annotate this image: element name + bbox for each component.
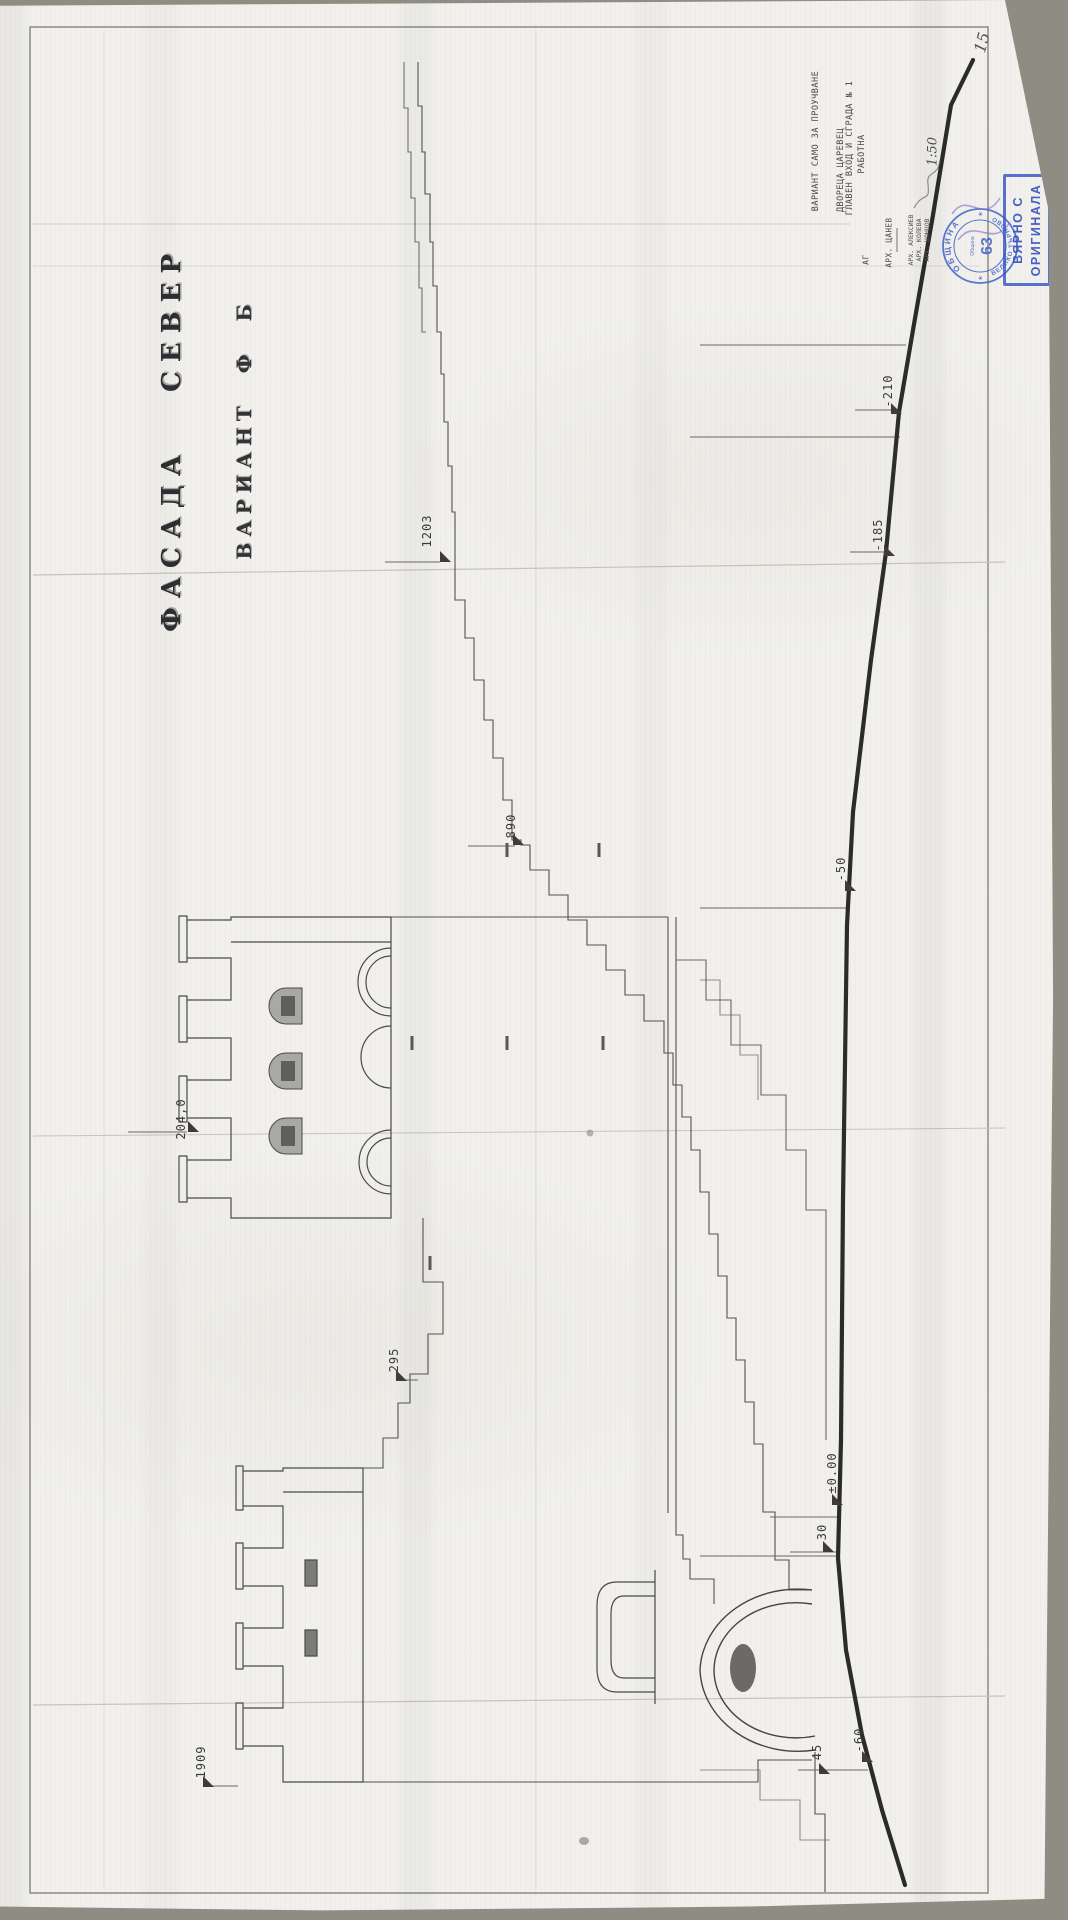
title-block-drawing-name: ГЛАВЕН ВХОД И СГРАДА № 1	[845, 78, 855, 218]
title-block-status: РАБОТНА	[857, 84, 867, 224]
certified-copy-stamp: ВЯРНО С ОРИГИНАЛА	[1003, 174, 1051, 286]
stamp-ring-top-text: ОБЩИНА	[943, 218, 962, 274]
title-block-architect-2: АРХ. КОЛЕВА	[915, 195, 923, 285]
certified-copy-stamp-line1: ВЯРНО С	[1009, 184, 1027, 277]
upper-tower-windows	[269, 988, 302, 1154]
elevation-label: 30	[815, 1497, 829, 1567]
elevation-label: -185	[871, 500, 885, 570]
drawing-title: ФАСАДА СЕВЕР	[157, 252, 187, 632]
elevation-label: 204,0	[174, 1084, 188, 1154]
lower-tower	[236, 1466, 363, 1782]
elevation-marker-icon	[884, 545, 895, 556]
elevation-marker-icon	[832, 1494, 843, 1505]
title-block-section-label: АГ	[862, 245, 871, 275]
gate-arch	[700, 1589, 815, 1751]
elevation-label: 45	[810, 1717, 824, 1787]
elevation-label: -50	[834, 834, 848, 904]
elevation-marker-icon	[203, 1776, 214, 1787]
title-block-variant-note: ВАРИАНТ САМО ЗА ПРОУЧВАНЕ	[811, 61, 821, 221]
putlog-holes	[412, 843, 603, 1270]
elevation-label: 890	[504, 791, 518, 861]
terrain-line	[838, 60, 973, 1885]
certified-copy-stamp-line2: ОРИГИНАЛА	[1027, 184, 1045, 277]
elevation-marker-icon	[396, 1370, 407, 1381]
elevation-label: 295	[387, 1325, 401, 1395]
paper-sheet: ОБЩИНА ВЕЛИКО ТЪРНОВО ✶ ✶ Община 63 ФАСА…	[0, 0, 1068, 1920]
title-block-architect-lead: АРХ. ЦАНЕВ	[885, 198, 894, 288]
stamp-star-right-icon: ✶	[977, 211, 985, 217]
elevation-marker-icon	[819, 1763, 830, 1774]
elevation-label: -210	[881, 356, 895, 426]
elevation-marker-icon	[845, 880, 856, 891]
scanned-drawing-sheet: ОБЩИНА ВЕЛИКО ТЪРНОВО ✶ ✶ Община 63 ФАСА…	[0, 0, 1068, 1920]
elevation-marker-icon	[862, 1751, 873, 1762]
scan-blemishes	[579, 1130, 594, 1846]
elevation-marker-icon	[891, 403, 902, 414]
drawing-scale: 1:50	[926, 122, 941, 182]
title-block-architect-3: АРХ. ЦОНЦОВ	[923, 195, 931, 285]
stamp-center-number: 63	[979, 237, 996, 255]
elevation-label: 1203	[420, 496, 434, 566]
elevation-marker-icon	[188, 1121, 199, 1132]
niche-window	[597, 1570, 655, 1704]
stamp-center-small-text: Община	[970, 236, 976, 255]
stamp-star-left-icon: ✶	[977, 275, 985, 281]
elevation-marker-icon	[513, 834, 524, 845]
ink-scribble	[952, 198, 1010, 240]
title-block-architect-1: АРХ. АЛЕКСИЕВ	[907, 195, 915, 285]
elevation-label: -60	[852, 1705, 866, 1775]
elevation-marker-icon	[823, 1541, 834, 1552]
drawing-subtitle: ВАРИАНТ Ф Б	[232, 279, 256, 579]
elevation-marker-icon	[440, 551, 451, 562]
